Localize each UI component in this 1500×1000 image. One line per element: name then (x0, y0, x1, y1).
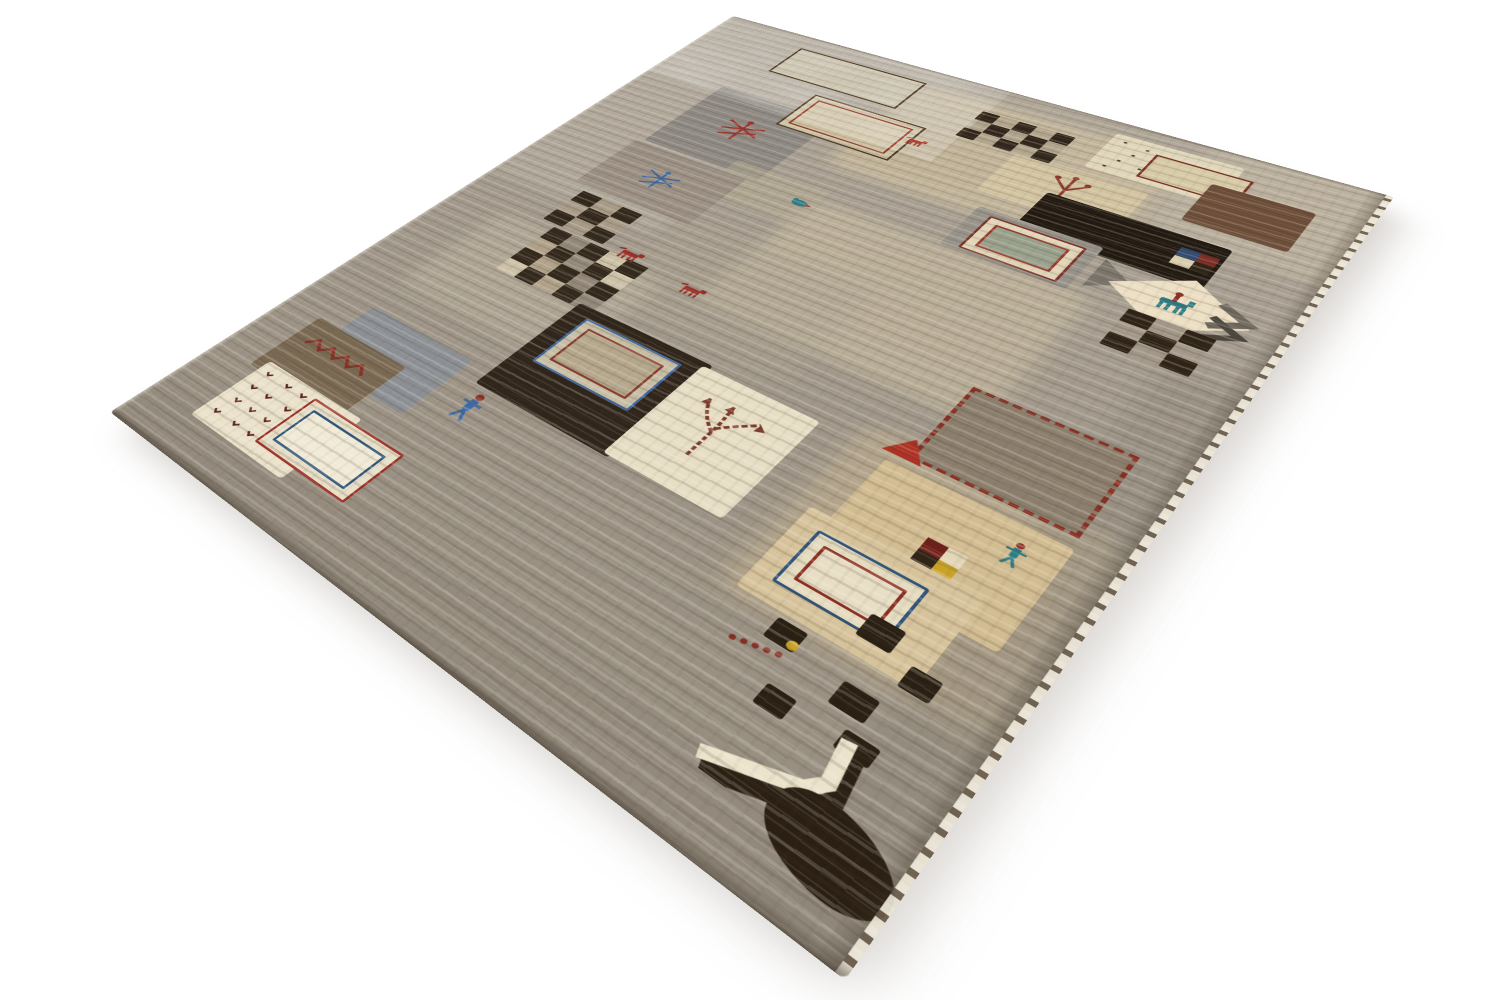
photo-scene (0, 0, 1500, 1000)
dark-square (827, 681, 880, 725)
dark-edge-area (110, 374, 907, 980)
person-motif (443, 389, 494, 425)
